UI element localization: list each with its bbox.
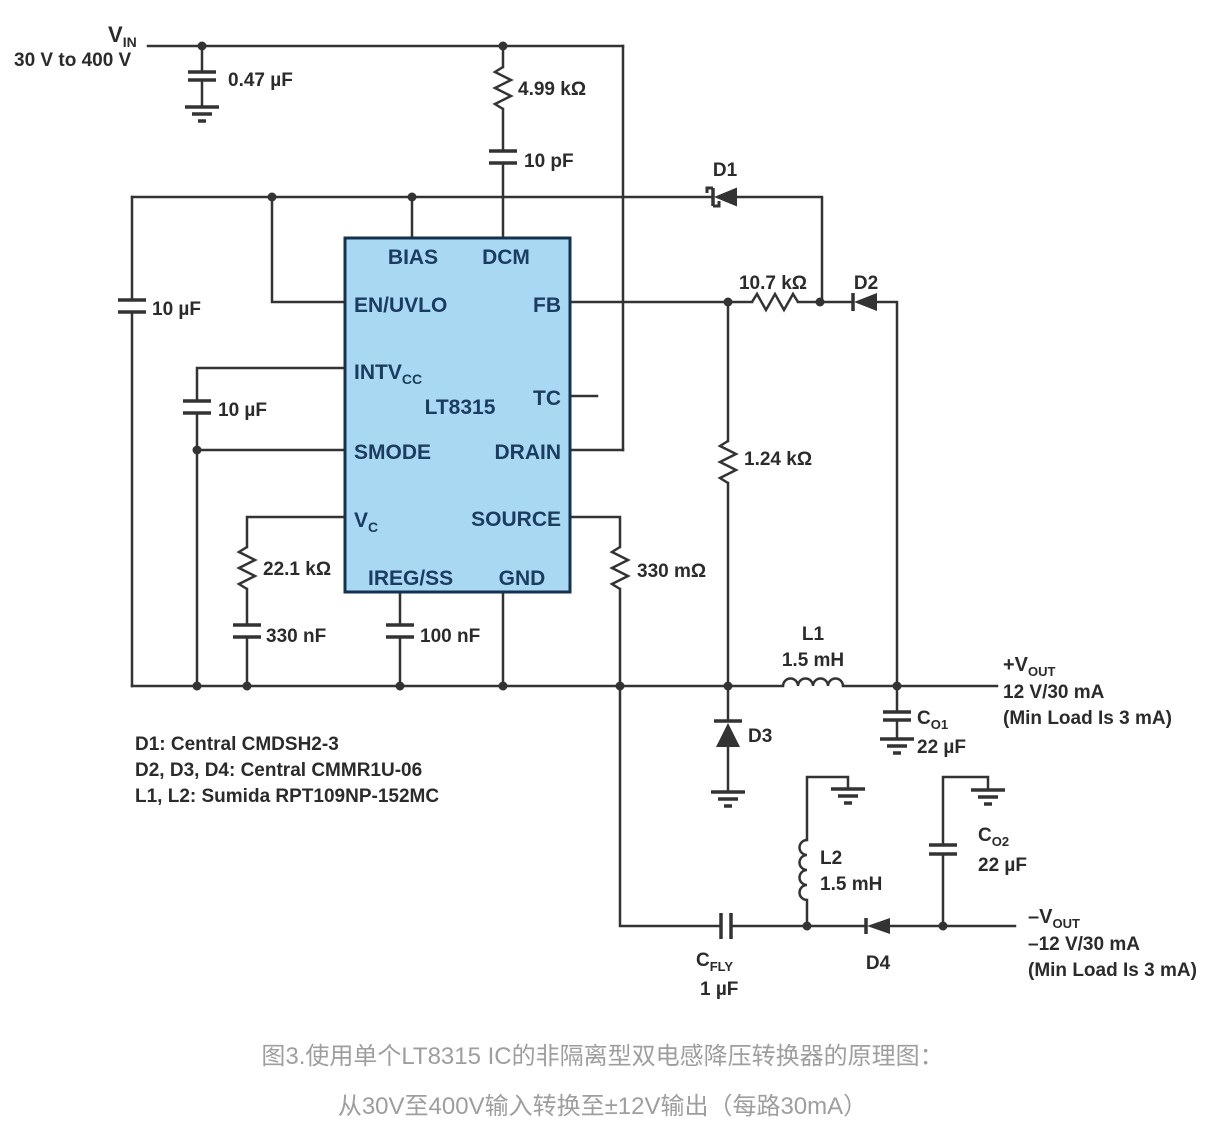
vin-net-label: VIN [108, 22, 137, 50]
d4-ref: D4 [866, 953, 891, 974]
vout-neg-net-label: –VOUT [1028, 906, 1080, 931]
d3-ref: D3 [748, 726, 772, 747]
pin-fb-label: FB [533, 294, 561, 317]
vin-range-label: 30 V to 400 V [14, 50, 132, 71]
rdcm-value: 4.99 kΩ [518, 79, 586, 100]
component-notes: D1: Central CMDSH2-3 D2, D3, D4: Central… [135, 734, 439, 807]
diode-d1-schottky [707, 188, 737, 207]
pin-tc-label: TC [533, 387, 561, 410]
rdiv-value: 1.24 kΩ [744, 449, 812, 470]
cvc-value: 330 nF [266, 626, 326, 647]
pin-iregss-label: IREG/SS [368, 567, 453, 590]
figure-caption-line2: 从30V至400V输入转换至±12V输出（每路30mA） [0, 1086, 1205, 1121]
inductor-l2 [800, 840, 807, 900]
note-d2-d3-d4: D2, D3, D4: Central CMMR1U-06 [135, 760, 422, 781]
d2-ref: D2 [854, 273, 878, 294]
rvc-value: 22.1 kΩ [263, 559, 331, 580]
resistor-rvc-22p1k [239, 547, 255, 589]
capacitor-co1 [883, 712, 911, 720]
note-l1-l2: L1, L2: Sumida RPT109NP-152MC [135, 786, 439, 807]
pin-gnd-label: GND [499, 567, 546, 590]
vout-neg-rating: –12 V/30 mA [1028, 934, 1140, 955]
pin-drain-label: DRAIN [495, 441, 562, 464]
capacitor-css [386, 625, 414, 637]
figure-caption-line1: 图3.使用单个LT8315 IC的非隔离型双电感降压转换器的原理图： [0, 1036, 1205, 1071]
ground-symbol-cin [185, 107, 219, 121]
ground-symbol-d3 [711, 792, 745, 806]
l2-value: 1.5 mH [820, 874, 882, 895]
inductor-l1 [783, 679, 843, 686]
capacitor-cvc [233, 625, 261, 637]
ground-symbol-l2 [831, 789, 865, 803]
l1-value: 1.5 mH [782, 650, 844, 671]
vout-pos-net-label: +VOUT [1003, 654, 1056, 679]
pin-bias-label: BIAS [388, 246, 438, 269]
ground-symbol-co1 [880, 739, 914, 753]
capacitor-cdcm [489, 151, 517, 163]
capacitor-co2 [929, 845, 957, 854]
schematic-figure: BIAS DCM EN/UVLO FB INTVCC TC LT8315 SMO… [0, 0, 1205, 1121]
cin-value: 0.47 µF [228, 70, 293, 91]
pin-dcm-label: DCM [482, 246, 530, 269]
co2-ref: CO2 [978, 825, 1009, 849]
pin-source-label: SOURCE [471, 508, 561, 531]
vout-pos-note: (Min Load Is 3 mA) [1003, 708, 1172, 729]
circuit-schematic: BIAS DCM EN/UVLO FB INTVCC TC LT8315 SMO… [0, 0, 1205, 1010]
ground-symbol-co2 [971, 790, 1005, 804]
resistor-rdcm-4p99k [495, 67, 511, 109]
co2-value: 22 µF [978, 855, 1027, 876]
cintvcc-value: 10 µF [218, 400, 267, 421]
vout-pos-rating: 12 V/30 mA [1003, 682, 1105, 703]
co1-value: 22 µF [917, 737, 966, 758]
capacitor-cin [188, 72, 216, 80]
d1-ref: D1 [713, 160, 738, 181]
ic-part-number: LT8315 [425, 396, 496, 419]
pin-smode-label: SMODE [354, 441, 431, 464]
diode-d2 [853, 293, 877, 311]
capacitor-cen [118, 300, 146, 312]
l1-ref: L1 [802, 624, 825, 645]
capacitor-cintvcc [183, 401, 211, 413]
resistor-rfb-10p7k [752, 294, 798, 310]
cen-value: 10 µF [152, 299, 201, 320]
ic-lt8315-block: BIAS DCM EN/UVLO FB INTVCC TC LT8315 SMO… [345, 238, 570, 592]
cfly-value: 1 µF [700, 979, 738, 1000]
l2-ref: L2 [820, 848, 842, 869]
cdcm-value: 10 pF [524, 151, 574, 172]
positive-output-labels: +VOUT 12 V/30 mA (Min Load Is 3 mA) [1003, 654, 1172, 729]
diode-d3 [714, 721, 742, 747]
capacitor-cfly [721, 913, 731, 939]
css-value: 100 nF [420, 626, 480, 647]
note-d1: D1: Central CMDSH2-3 [135, 734, 339, 755]
rfb-value: 10.7 kΩ [739, 273, 807, 294]
diode-d4 [866, 918, 890, 934]
co1-ref: CO1 [917, 708, 948, 732]
resistor-rdiv-1p24k [720, 441, 736, 483]
pin-en-uvlo-label: EN/UVLO [354, 294, 447, 317]
vout-neg-note: (Min Load Is 3 mA) [1028, 960, 1197, 981]
cfly-ref: CFLY [696, 950, 733, 974]
resistor-rsense-330m [612, 547, 628, 589]
negative-output-labels: –VOUT –12 V/30 mA (Min Load Is 3 mA) [1028, 906, 1197, 981]
rsense-value: 330 mΩ [637, 561, 706, 582]
